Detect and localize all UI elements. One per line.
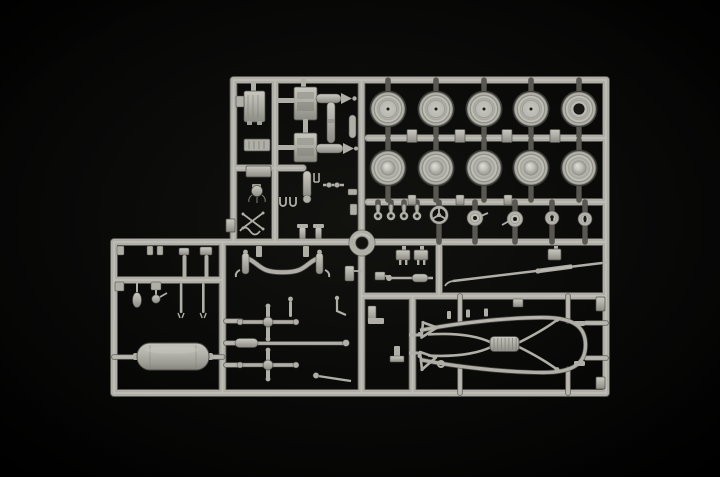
sprue-photo: Light grey injection-moulded model kit s…: [0, 0, 720, 477]
photo-vignette: [0, 0, 720, 477]
